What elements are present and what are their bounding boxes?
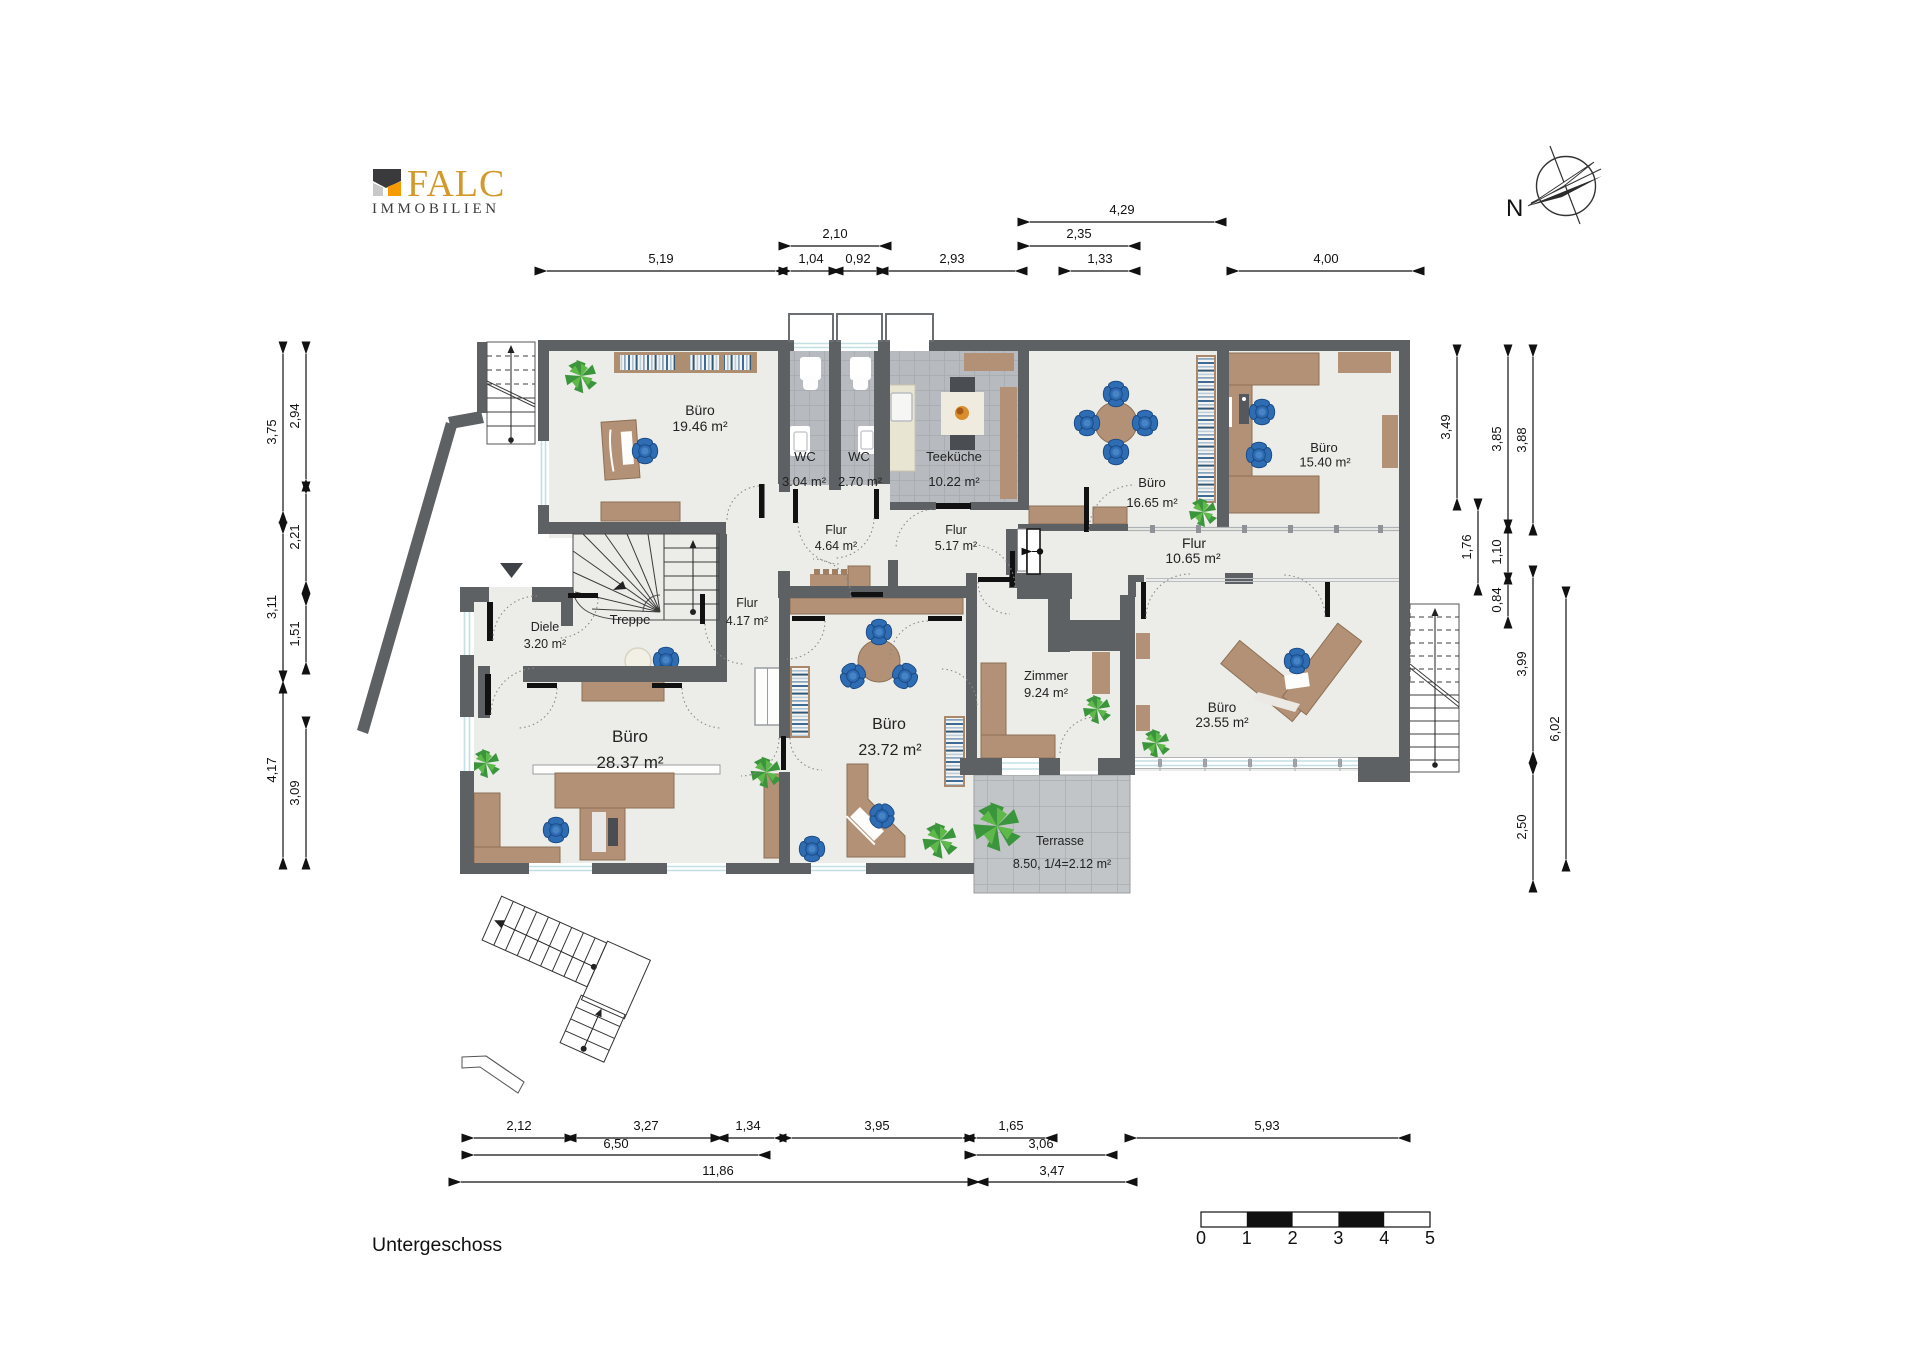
svg-text:3,06: 3,06 [1028,1136,1053,1151]
svg-text:Büro: Büro [612,727,648,746]
svg-text:Treppe: Treppe [610,612,651,627]
svg-text:4,29: 4,29 [1109,202,1134,217]
svg-text:4.64 m²: 4.64 m² [815,539,857,553]
svg-text:2,93: 2,93 [939,251,964,266]
svg-text:Büro: Büro [1138,475,1165,490]
svg-text:3,99: 3,99 [1514,651,1529,676]
svg-text:2: 2 [1288,1228,1298,1248]
svg-text:Zimmer: Zimmer [1024,668,1069,683]
svg-text:WC: WC [848,449,870,464]
svg-text:15.40 m²: 15.40 m² [1299,455,1351,470]
svg-text:3: 3 [1333,1228,1343,1248]
svg-text:23.55 m²: 23.55 m² [1195,715,1249,730]
svg-text:2,12: 2,12 [506,1118,531,1133]
svg-text:2,35: 2,35 [1066,226,1091,241]
svg-text:1,10: 1,10 [1489,539,1504,564]
svg-text:1,04: 1,04 [798,251,823,266]
svg-text:5.17 m²: 5.17 m² [935,539,977,553]
svg-text:3,11: 3,11 [264,595,279,619]
svg-text:6,50: 6,50 [603,1136,628,1151]
svg-text:Büro: Büro [872,716,906,733]
svg-text:6,02: 6,02 [1547,716,1562,741]
svg-text:0,84: 0,84 [1489,587,1504,612]
svg-text:2.70 m²: 2.70 m² [838,474,883,489]
svg-text:1,33: 1,33 [1087,251,1112,266]
svg-text:11,86: 11,86 [702,1163,734,1178]
svg-text:5,19: 5,19 [648,251,673,266]
svg-text:1,34: 1,34 [735,1118,760,1133]
svg-text:3,47: 3,47 [1039,1163,1064,1178]
svg-text:Flur: Flur [736,596,758,610]
svg-text:5,93: 5,93 [1254,1118,1279,1133]
svg-text:5: 5 [1425,1228,1435,1248]
svg-text:23.72 m²: 23.72 m² [858,742,922,759]
svg-text:28.37 m²: 28.37 m² [596,753,663,772]
svg-text:2,50: 2,50 [1514,814,1529,839]
svg-text:IMMOBILIEN: IMMOBILIEN [372,201,500,217]
svg-text:1: 1 [1242,1228,1252,1248]
svg-text:4: 4 [1379,1228,1389,1248]
svg-text:2,94: 2,94 [287,403,302,428]
svg-text:Flur: Flur [1182,535,1206,551]
svg-text:WC: WC [794,449,816,464]
svg-text:10.22 m²: 10.22 m² [928,474,980,489]
svg-text:Büro: Büro [1310,440,1337,455]
svg-text:3,09: 3,09 [287,780,302,805]
svg-text:2,21: 2,21 [287,524,302,549]
svg-text:1,76: 1,76 [1459,534,1474,559]
svg-text:Flur: Flur [825,523,847,537]
svg-text:4.17 m²: 4.17 m² [726,614,768,628]
svg-text:Teeküche: Teeküche [926,449,982,464]
svg-text:1,51: 1,51 [287,621,302,646]
svg-text:Büro: Büro [685,402,715,418]
svg-text:0,92: 0,92 [845,251,870,266]
svg-text:Terrasse: Terrasse [1036,834,1084,848]
svg-text:3.20 m²: 3.20 m² [524,637,566,651]
svg-text:3,49: 3,49 [1438,414,1453,439]
svg-text:19.46 m²: 19.46 m² [672,418,728,434]
svg-text:0: 0 [1196,1228,1206,1248]
svg-text:3,75: 3,75 [264,419,279,444]
svg-text:3,95: 3,95 [864,1118,889,1133]
svg-text:1,65: 1,65 [998,1118,1023,1133]
svg-text:3.04 m²: 3.04 m² [782,474,827,489]
svg-text:4,17: 4,17 [264,757,279,782]
svg-text:Diele: Diele [531,620,560,634]
svg-text:Büro: Büro [1208,700,1237,715]
svg-text:2,10: 2,10 [822,226,847,241]
svg-text:10.65 m²: 10.65 m² [1165,550,1221,566]
svg-text:4,00: 4,00 [1313,251,1338,266]
svg-text:Untergeschoss: Untergeschoss [372,1234,502,1256]
svg-text:16.65 m²: 16.65 m² [1126,495,1178,510]
svg-text:8.50, 1/4=2.12 m²: 8.50, 1/4=2.12 m² [1013,857,1111,871]
svg-text:FALC: FALC [407,163,505,205]
svg-text:N: N [1506,195,1523,222]
svg-text:Flur: Flur [945,523,967,537]
svg-text:9.24 m²: 9.24 m² [1024,685,1069,700]
svg-text:3,88: 3,88 [1514,427,1529,452]
svg-text:3,27: 3,27 [633,1118,658,1133]
svg-text:3,85: 3,85 [1489,426,1504,451]
